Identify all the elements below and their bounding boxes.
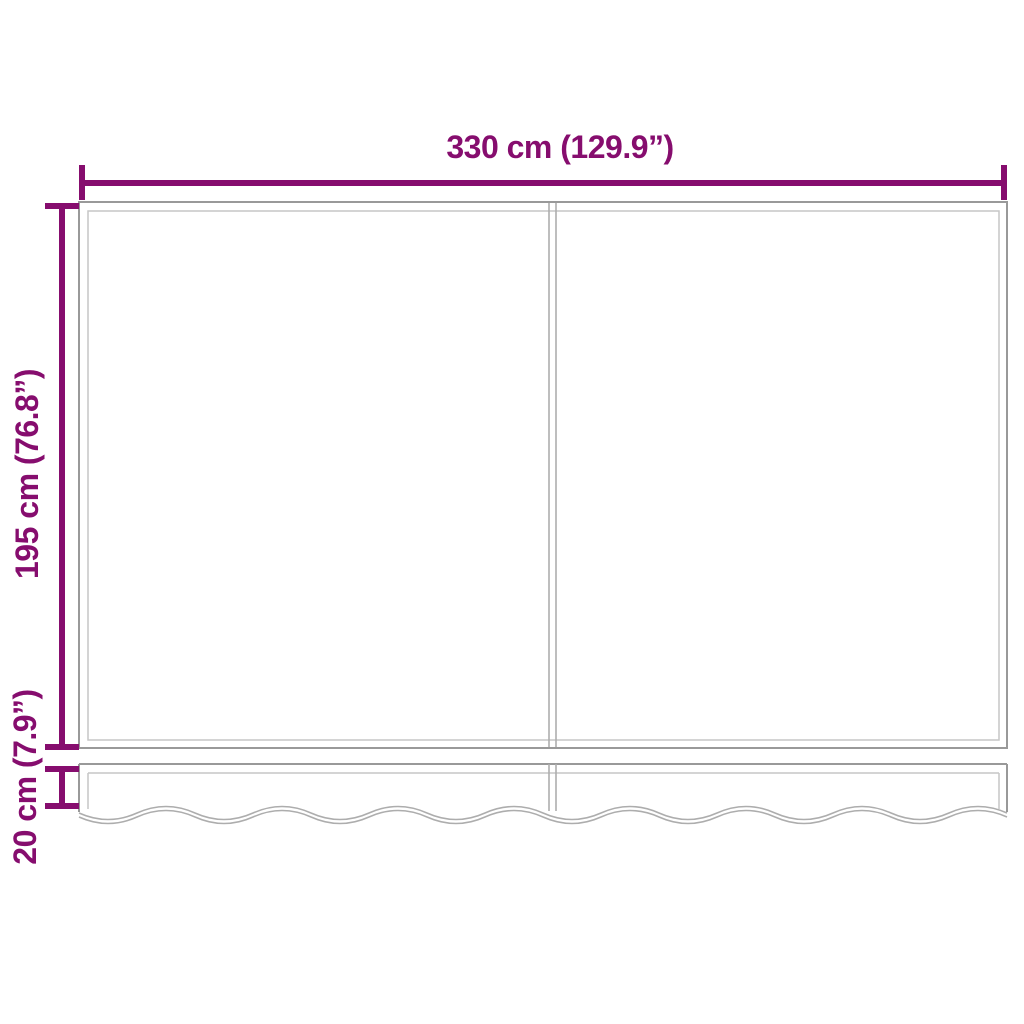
width-dimension-line: [82, 165, 1004, 200]
awning-dimension-diagram: 330 cm (129.9”) 195 cm (76.8”) 20 cm (7.…: [0, 0, 1024, 1024]
valance-strip: [79, 764, 1007, 824]
valance-height-dimension-line: [45, 769, 79, 806]
height-dimension-label: 195 cm (76.8”): [11, 369, 43, 579]
valance-height-dimension-label: 20 cm (7.9”): [9, 689, 41, 864]
height-dimension-line: [45, 206, 79, 747]
awning-fabric-panel: [79, 202, 1007, 748]
width-dimension-label: 330 cm (129.9”): [446, 131, 673, 163]
fabric-inner-hem: [88, 211, 999, 740]
fabric-outer-edge: [79, 202, 1007, 748]
